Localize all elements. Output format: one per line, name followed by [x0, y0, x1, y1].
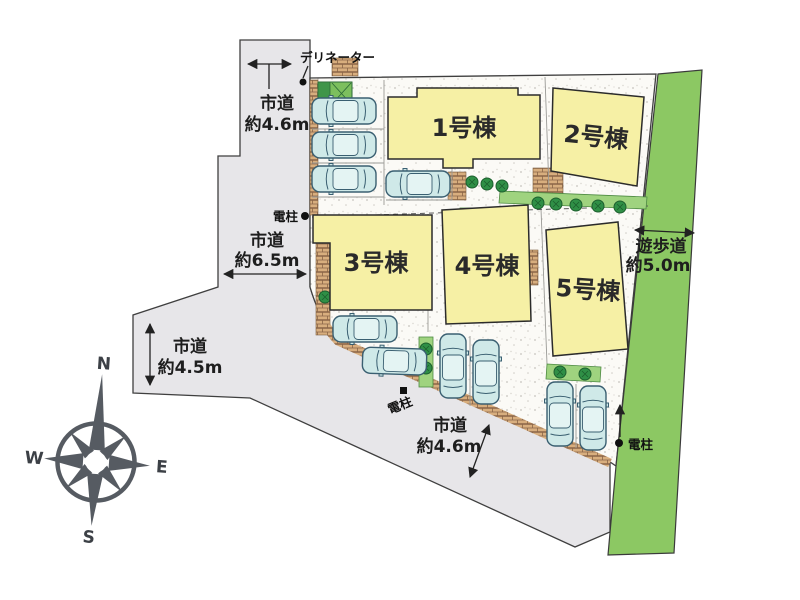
building-1-label: 1号棟 — [432, 114, 498, 142]
tree-icon — [496, 180, 508, 192]
car — [578, 386, 609, 450]
delineator-dot — [300, 79, 307, 86]
tree-icon — [592, 200, 604, 212]
tree-icon — [481, 178, 493, 190]
tree-icon — [570, 199, 582, 211]
building-4-label: 4号棟 — [455, 252, 521, 280]
car — [545, 382, 576, 446]
road-southwest-width: 約4.5m — [158, 357, 223, 378]
road-southwest-name: 市道 — [173, 336, 207, 357]
pole-east-dot — [615, 439, 623, 447]
curb-patch — [448, 172, 466, 200]
car — [333, 314, 397, 345]
road-west-name: 市道 — [250, 230, 284, 251]
delineator-label: デリネーター — [300, 50, 375, 65]
road-south-name: 市道 — [433, 415, 467, 436]
road-south-width: 約4.6m — [417, 436, 482, 457]
building-3-label: 3号棟 — [344, 249, 410, 277]
pole-east-label: 電柱 — [628, 437, 654, 452]
tree-icon — [614, 201, 626, 213]
tree-icon — [319, 291, 331, 303]
compass-s-label: S — [82, 527, 96, 548]
promenade-width: 約5.0m — [626, 255, 691, 276]
building-5-label: 5号棟 — [555, 274, 622, 307]
pole-west-label: 電柱 — [273, 209, 299, 224]
site-plan: 1号棟 2号棟 3号棟 4号棟 5号棟 市道 約4.6m デリネーター 電 — [0, 0, 800, 600]
compass-e-label: E — [155, 457, 168, 478]
tree-icon — [579, 368, 591, 380]
tree-icon — [554, 366, 566, 378]
car — [438, 334, 469, 398]
car — [362, 345, 427, 378]
tree-icon — [550, 198, 562, 210]
car — [312, 130, 376, 161]
tree-icon — [466, 176, 478, 188]
road-west-width: 約6.5m — [235, 250, 300, 271]
compass-n-label: N — [96, 354, 112, 375]
compass-w-label: W — [24, 448, 44, 469]
promenade-name: 遊歩道 — [636, 236, 687, 257]
site-plan-drawing: 1号棟 2号棟 3号棟 4号棟 5号棟 市道 約4.6m デリネーター 電 — [0, 0, 800, 600]
pole-south-dot — [400, 387, 407, 394]
road-north-name: 市道 — [260, 93, 294, 114]
road-north-width: 約4.6m — [245, 114, 310, 135]
car — [471, 340, 502, 404]
tree-icon — [532, 197, 544, 209]
car — [312, 96, 376, 127]
car — [312, 164, 376, 195]
pole-west-dot — [301, 212, 309, 220]
car — [386, 169, 450, 200]
